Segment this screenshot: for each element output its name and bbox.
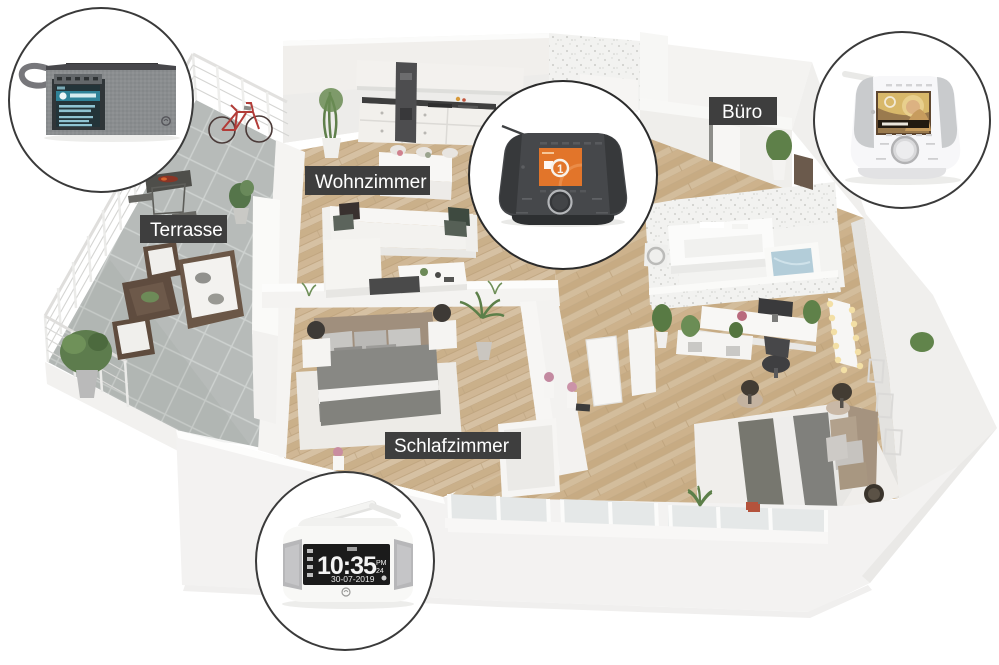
svg-text:Schlafzimmer: Schlafzimmer xyxy=(394,436,510,457)
svg-text:24: 24 xyxy=(376,568,384,575)
svg-text:Terrasse: Terrasse xyxy=(150,220,223,241)
svg-text:1: 1 xyxy=(557,164,564,176)
svg-text:Büro: Büro xyxy=(722,102,762,123)
svg-text:30-07-2019: 30-07-2019 xyxy=(331,574,375,584)
svg-text:PM: PM xyxy=(376,560,387,567)
svg-text:Wohnzimmer: Wohnzimmer xyxy=(315,172,427,193)
